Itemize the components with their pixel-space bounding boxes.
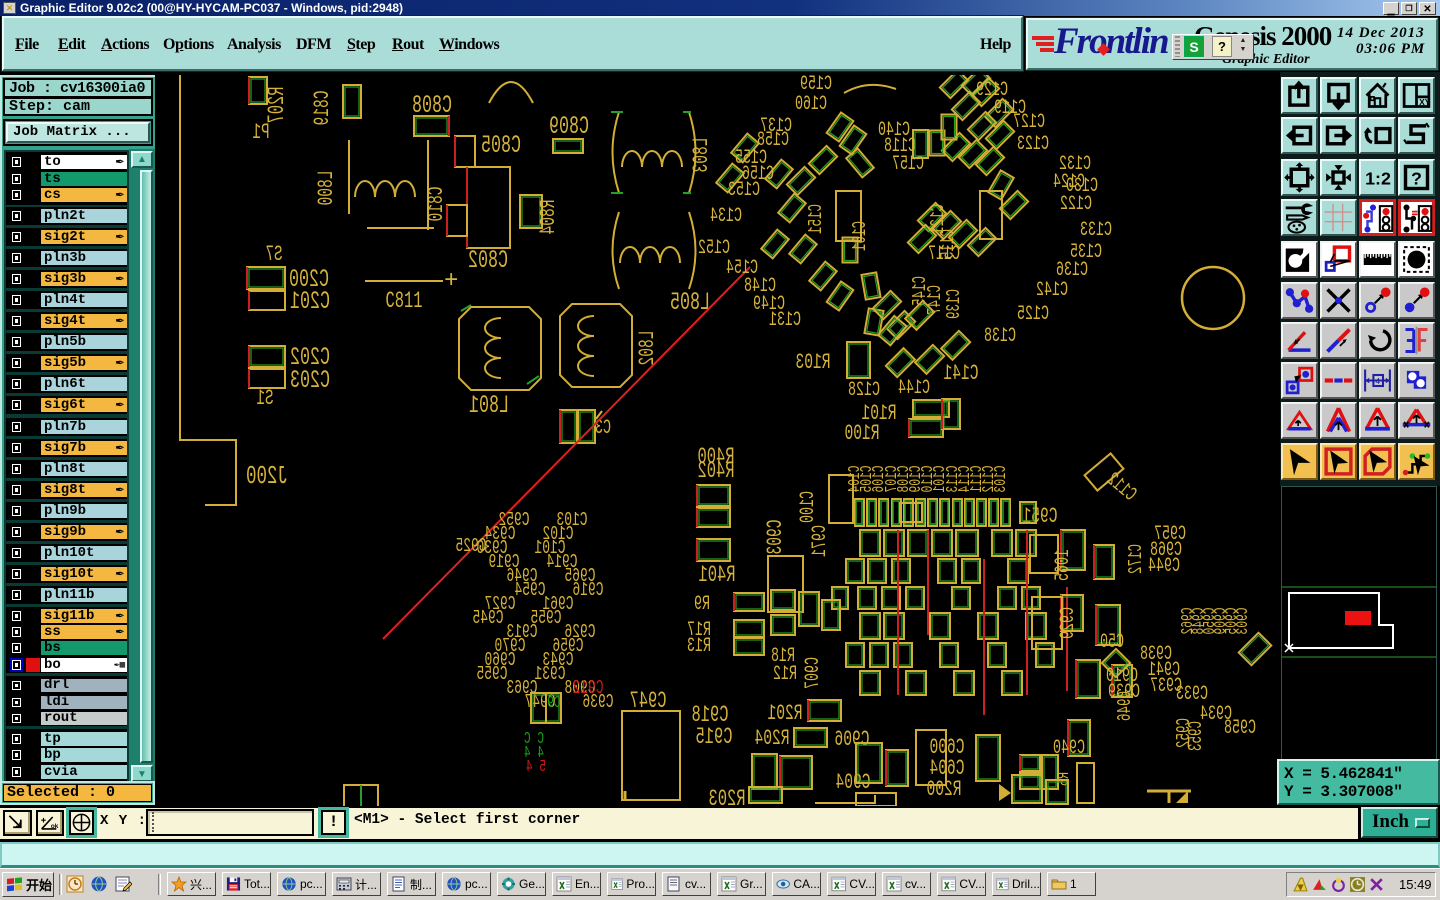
svg-text:C139: C139 [943,289,965,319]
svg-text:XY: XY [1419,98,1431,107]
svg-text:L802: L802 [635,331,660,366]
svg-text:?: ? [1411,168,1422,188]
svg-text:C809: C809 [549,112,589,141]
svg-text:C123: C123 [1017,133,1049,156]
svg-text:R103: R103 [796,350,831,375]
svg-text:C819: C819 [310,91,335,126]
svg-text:1:2: 1:2 [1365,168,1391,188]
svg-text:C929: C929 [1057,607,1080,639]
svg-text:R201: R201 [768,701,803,726]
svg-text:C134: C134 [710,205,742,228]
svg-text:R804: R804 [536,200,561,235]
svg-text:1065: 1065 [1052,549,1075,581]
svg-text:C916: C916 [573,579,604,601]
svg-text:R402: R402 [698,458,735,484]
svg-text:C810: C810 [424,187,449,222]
svg-text:4: 4 [1375,377,1380,386]
svg-text:5 4: 5 4 [526,758,546,777]
svg-text:C971: C971 [809,525,832,557]
svg-text:L801: L801 [469,391,509,420]
svg-text:C153: C153 [728,179,760,202]
svg-text:C915: C915 [696,724,733,750]
svg-text:C912: C912 [573,677,604,699]
svg-text:C945: C945 [473,607,504,629]
svg-text:C931: C931 [535,663,566,685]
svg-text:C100: C100 [797,491,820,523]
svg-text:C122: C122 [1060,193,1092,216]
svg-text:C906: C906 [835,727,870,752]
svg-text:C944: C944 [1148,555,1180,578]
svg-text:R203: R203 [709,786,746,806]
svg-text:C811: C811 [386,288,423,314]
svg-text:C955: C955 [477,663,508,685]
svg-text:R9: R9 [694,593,710,616]
svg-text:L803: L803 [689,138,714,173]
svg-text:C951: C951 [1023,504,1058,529]
svg-text:C144: C144 [898,377,930,400]
svg-text:R13: R13 [687,635,711,658]
svg-text:C201: C201 [290,287,330,316]
svg-text:C142: C142 [1036,279,1068,302]
svg-text:C161: C161 [849,221,871,251]
svg-text:R12: R12 [773,663,797,686]
svg-text:C151: C151 [805,204,827,234]
svg-text:C103: C103 [992,466,1011,493]
svg-text:C128: C128 [848,379,880,402]
svg-text:C115: C115 [937,229,959,259]
svg-text:C172: C172 [1125,544,1147,574]
svg-text:C802: C802 [468,246,508,275]
svg-text:C925: C925 [456,535,487,557]
svg-text:C946: C946 [1114,691,1136,721]
svg-text:J200: J200 [246,461,288,491]
svg-text:S1: S1 [257,386,274,411]
svg-text:C131: C131 [769,309,801,332]
svg-text:C125: C125 [1017,303,1049,326]
svg-text:C138: C138 [984,325,1016,348]
svg-text:+: + [444,268,458,295]
svg-text:R100: R100 [845,421,880,446]
svg-text:C203: C203 [290,366,330,395]
svg-text:C805: C805 [481,131,521,160]
svg-text:C907: C907 [802,657,825,689]
svg-text:R401: R401 [699,562,736,588]
svg-text:L800: L800 [314,171,339,206]
svg-text:P1: P1 [253,120,270,145]
svg-text:C50: C50 [1100,631,1124,654]
svg-text:R204: R204 [755,726,790,751]
svg-text:C954: C954 [515,579,546,601]
svg-text:C152: C152 [698,237,730,260]
svg-text:S7: S7 [266,242,283,267]
svg-text:C903: C903 [1234,608,1253,635]
svg-text:R207: R207 [264,87,290,124]
svg-text:C127: C127 [1013,111,1045,134]
svg-text:C903: C903 [763,520,788,555]
svg-text:C160: C160 [795,93,827,116]
svg-text:C947: C947 [630,688,667,714]
svg-text:R200: R200 [927,777,962,802]
svg-text:C141: C141 [944,361,979,386]
svg-text:C133: C133 [1080,219,1112,242]
svg-text:ok: ok [51,823,59,830]
svg-text:C953: C953 [1185,721,1207,751]
